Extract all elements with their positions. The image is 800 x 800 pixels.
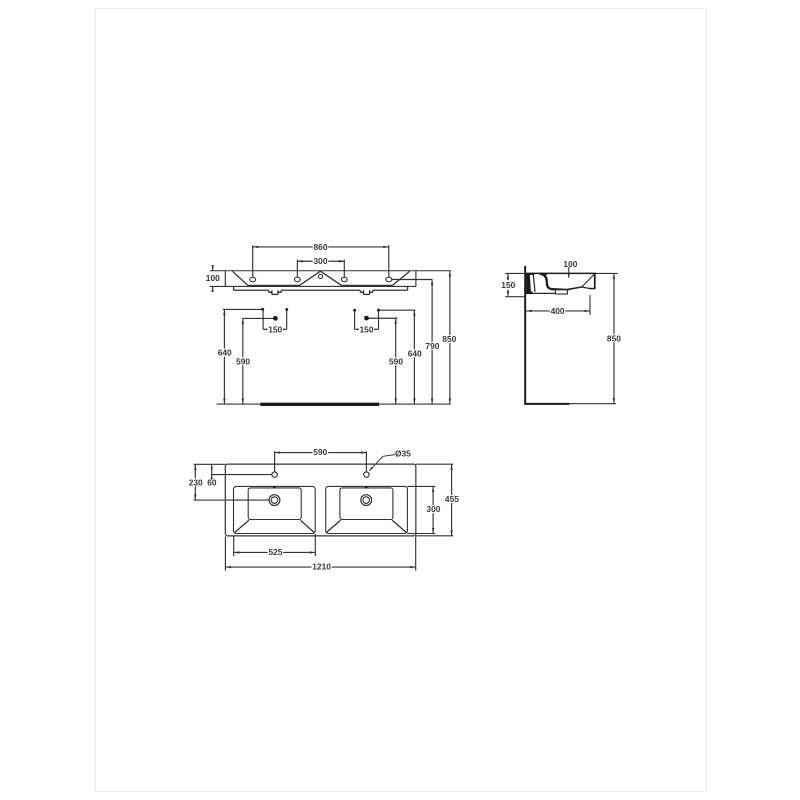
svg-text:150: 150 [501,280,515,290]
svg-text:590: 590 [313,447,327,457]
svg-text:150: 150 [268,325,282,335]
svg-text:590: 590 [236,356,250,366]
svg-text:640: 640 [218,348,232,358]
svg-text:590: 590 [389,356,403,366]
svg-text:400: 400 [551,306,565,316]
svg-text:790: 790 [425,341,439,351]
svg-text:850: 850 [607,333,621,343]
svg-text:525: 525 [269,547,283,557]
svg-text:1210: 1210 [312,562,331,572]
svg-text:300: 300 [426,504,440,514]
svg-text:640: 640 [408,348,422,358]
svg-text:230: 230 [189,477,203,487]
svg-text:100: 100 [206,273,220,283]
svg-text:100: 100 [563,259,577,269]
svg-text:300: 300 [314,256,328,266]
svg-text:860: 860 [314,242,328,252]
svg-text:455: 455 [445,494,459,504]
svg-text:Ø35: Ø35 [395,448,411,458]
svg-text:60: 60 [207,477,217,487]
svg-text:850: 850 [442,334,456,344]
svg-text:150: 150 [360,325,374,335]
